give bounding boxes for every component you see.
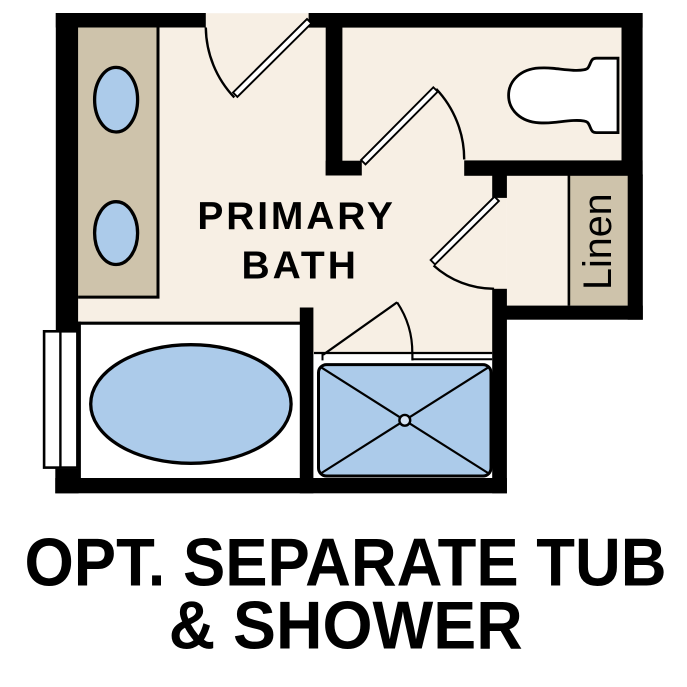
svg-text:Linen: Linen bbox=[576, 193, 620, 290]
svg-text:PRIMARY: PRIMARY bbox=[197, 195, 393, 238]
svg-text:& SHOWER: & SHOWER bbox=[169, 587, 523, 663]
